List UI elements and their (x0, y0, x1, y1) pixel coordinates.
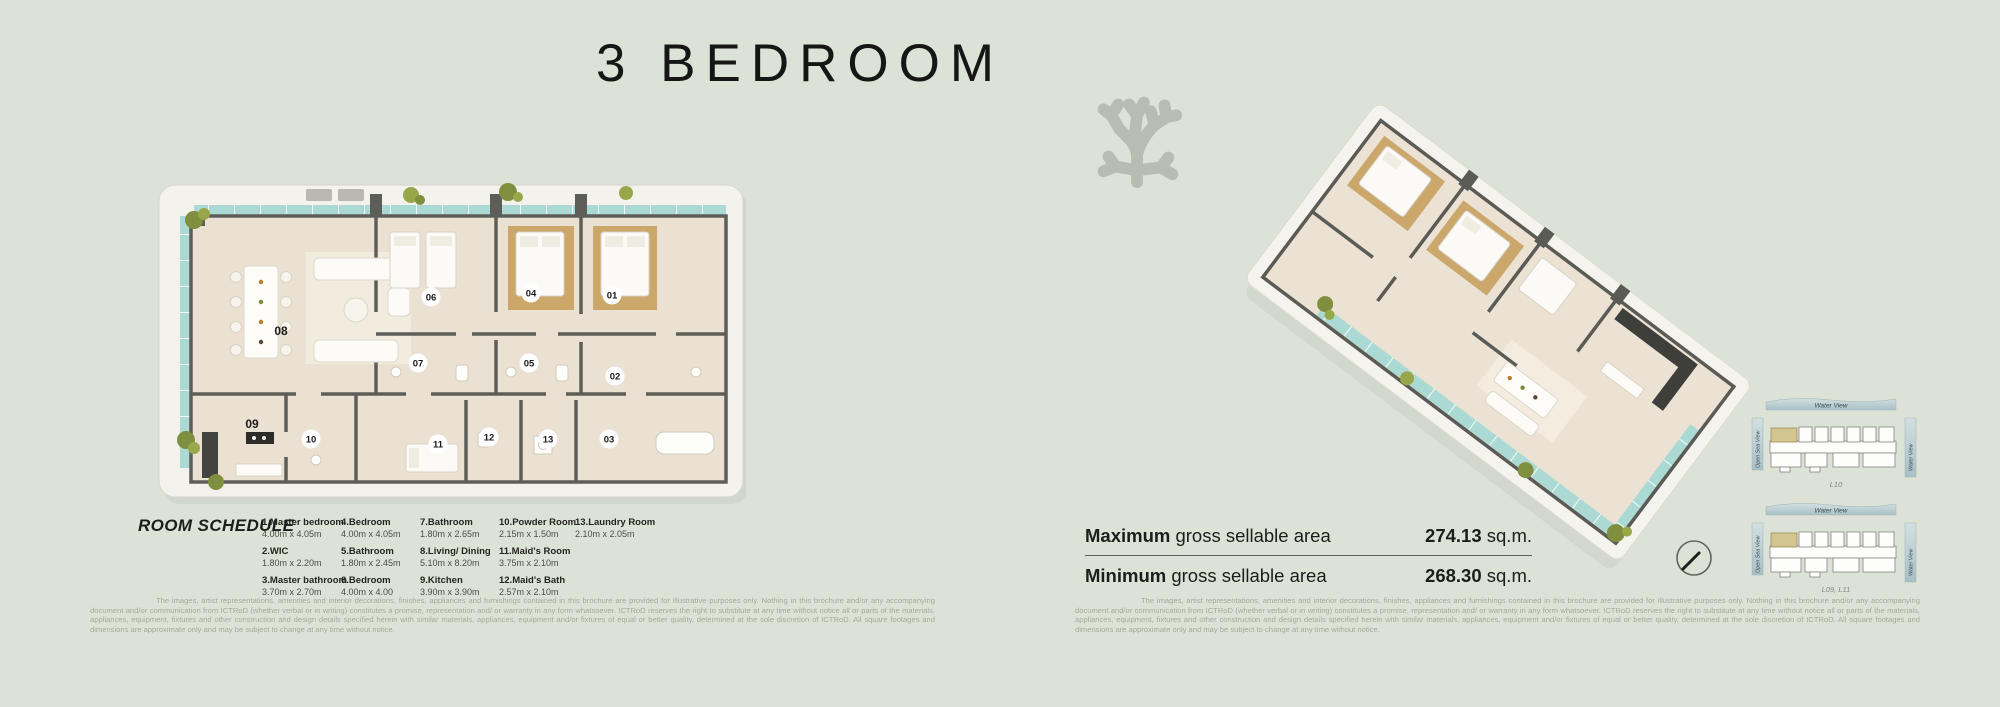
disclaimer-right: The images, artist representations, amen… (1075, 596, 1920, 635)
room-entry: 5.Bathroom1.80m x 2.45m (341, 546, 420, 569)
room-badge: 01 (603, 286, 622, 305)
room-badge: 05 (520, 354, 539, 373)
room-badge: 07 (409, 354, 428, 373)
room-label: 09 (245, 417, 259, 431)
room-schedule-column: 13.Laundry Room2.10m x 2.05m (575, 517, 665, 604)
room-entry: 13.Laundry Room2.10m x 2.05m (575, 517, 665, 540)
room-badge: 04 (522, 284, 541, 303)
sellable-area-table: Maximum gross sellable area 274.13 sq.m.… (1085, 525, 1532, 587)
compass-icon (1674, 538, 1714, 578)
svg-text:08: 08 (274, 324, 288, 338)
room-entry: 8.Living/ Dining5.10m x 8.20m (420, 546, 499, 569)
key-plan-l09-l11: Water View Open Sea View Water View L09,… (1750, 496, 1920, 600)
room-entry: 11.Maid's Room3.75m x 2.10m (499, 546, 575, 569)
area-divider (1085, 555, 1532, 556)
svg-text:02: 02 (610, 372, 621, 383)
floor-plan-3d (1220, 70, 1760, 570)
svg-text:Open Sea View: Open Sea View (1756, 535, 1762, 573)
room-entry: 9.Kitchen3.90m x 3.90m (420, 575, 499, 598)
room-entry: 12.Maid's Bath2.57m x 2.10m (499, 575, 575, 598)
svg-text:11: 11 (433, 440, 444, 451)
svg-text:04: 04 (526, 289, 537, 300)
floor-plan-2d: 01 02 03 04 05 06 07 08 09 10 11 12 13 (156, 182, 746, 504)
room-schedule-column: 10.Powder Room2.15m x 1.50m 11.Maid's Ro… (499, 517, 575, 604)
room-schedule-column: 4.Bedroom4.00m x 4.05m 5.Bathroom1.80m x… (341, 517, 420, 604)
min-value: 268.30 (1425, 565, 1482, 586)
svg-text:03: 03 (604, 435, 615, 446)
room-badge: 02 (606, 367, 625, 386)
floor-level-label: L09, L11 (1822, 585, 1851, 594)
disclaimer-left: The images, artist representations, amen… (90, 596, 935, 635)
room-entry: 2.WIC1.80m x 2.20m (262, 546, 341, 569)
room-entry: 3.Master bathroom3.70m x 2.70m (262, 575, 341, 598)
min-label: Minimum (1085, 565, 1166, 586)
svg-text:01: 01 (607, 291, 618, 302)
svg-text:09: 09 (245, 417, 259, 431)
area-minimum-row: Minimum gross sellable area 268.30 sq.m. (1085, 565, 1532, 587)
max-value: 274.13 (1425, 525, 1482, 546)
coral-icon (1078, 72, 1196, 190)
room-entry: 1.Master bedroom4.00m x 4.05m (262, 517, 341, 540)
unit-highlight (1771, 533, 1797, 547)
room-badge: 10 (302, 430, 321, 449)
room-entry: 6.Bedroom4.00m x 4.00 (341, 575, 420, 598)
room-badge: 03 (600, 430, 619, 449)
svg-text:10: 10 (306, 435, 317, 446)
room-entry: 10.Powder Room2.15m x 1.50m (499, 517, 575, 540)
svg-text:Open Sea View: Open Sea View (1756, 430, 1762, 468)
floor-level-label: L10 (1830, 480, 1843, 489)
key-plan-l10: Water View Open Sea View Water View L10 (1750, 391, 1920, 495)
svg-text:07: 07 (413, 359, 424, 370)
room-badge: 06 (422, 288, 441, 307)
room-schedule: 1.Master bedroom4.00m x 4.05m 2.WIC1.80m… (262, 517, 665, 604)
room-entry: 4.Bedroom4.00m x 4.05m (341, 517, 420, 540)
svg-text:12: 12 (484, 433, 495, 444)
brochure-page: 3 BEDROOM (0, 0, 2000, 707)
svg-text:06: 06 (426, 293, 437, 304)
room-schedule-column: 1.Master bedroom4.00m x 4.05m 2.WIC1.80m… (262, 517, 341, 604)
room-badge: 13 (539, 430, 558, 449)
page-title: 3 BEDROOM (596, 33, 1004, 94)
svg-text:Water View: Water View (1909, 548, 1915, 576)
max-label: Maximum (1085, 525, 1170, 546)
svg-text:13: 13 (543, 435, 554, 446)
room-schedule-column: 7.Bathroom1.80m x 2.65m 8.Living/ Dining… (420, 517, 499, 604)
svg-text:Water View: Water View (1815, 403, 1849, 410)
svg-text:Water View: Water View (1815, 508, 1849, 515)
unit-highlight (1771, 428, 1797, 442)
area-maximum-row: Maximum gross sellable area 274.13 sq.m. (1085, 525, 1532, 547)
svg-text:Water View: Water View (1909, 443, 1915, 471)
room-label: 08 (274, 324, 288, 338)
svg-text:05: 05 (524, 359, 535, 370)
room-badge: 12 (480, 428, 499, 447)
room-badge: 11 (429, 435, 448, 454)
room-entry: 7.Bathroom1.80m x 2.65m (420, 517, 499, 540)
